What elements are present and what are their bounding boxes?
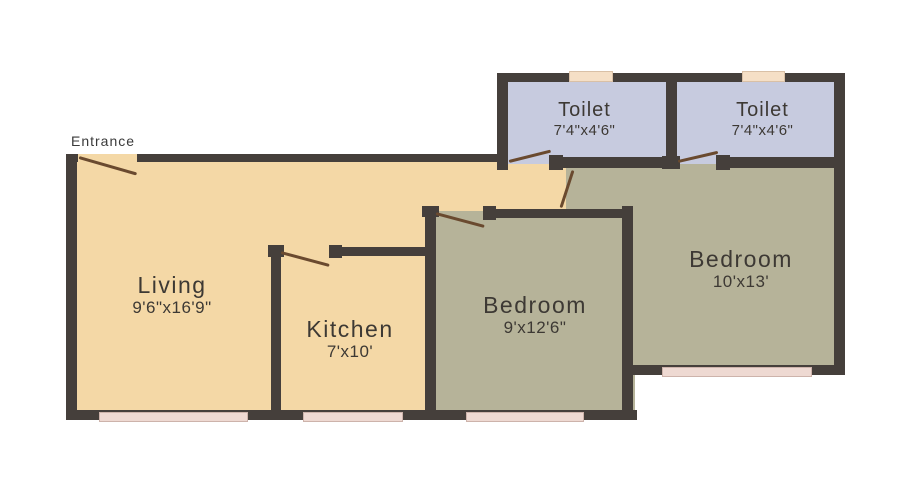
living-name: Living — [92, 272, 252, 298]
living-label: Living 9'6"x16'9" — [92, 272, 252, 318]
bedroom1-label: Bedroom 9'x12'6" — [455, 292, 615, 338]
bedroom2-label: Bedroom 10'x13' — [661, 246, 821, 292]
toilet2-window — [742, 71, 785, 82]
kitchen-dims: 7'x10' — [270, 342, 430, 362]
wall-kitchen-top — [329, 247, 433, 256]
kitchen-label: Kitchen 7'x10' — [270, 316, 430, 362]
wall-toilet1-bottom — [549, 157, 667, 168]
wall-bedroom1-right — [622, 206, 633, 420]
bedroom1-dims: 9'x12'6" — [455, 318, 615, 338]
floor-plan: Entrance Living 9'6"x16'9" Kitchen 7'x10… — [0, 0, 900, 500]
toilet1-name: Toilet — [517, 99, 652, 122]
bedroom1-name: Bedroom — [455, 292, 615, 318]
living-dims: 9'6"x16'9" — [92, 298, 252, 318]
wall-toilets-mid — [666, 73, 677, 164]
toilet2-name: Toilet — [695, 99, 830, 122]
entrance-label: Entrance — [71, 133, 135, 149]
bedroom2-dims: 10'x13' — [661, 272, 821, 292]
wall-bedroom1-top — [483, 209, 633, 218]
toilet1-label: Toilet 7'4"x4'6" — [517, 99, 652, 139]
toilet2-dims: 7'4"x4'6" — [695, 122, 830, 139]
kitchen-window — [303, 412, 403, 422]
bedroom2-window — [662, 367, 812, 377]
bedroom2-name: Bedroom — [661, 246, 821, 272]
toilet1-dims: 7'4"x4'6" — [517, 122, 652, 139]
living-window — [99, 412, 248, 422]
wall-outer-right — [834, 73, 845, 375]
toilet2-label: Toilet 7'4"x4'6" — [695, 99, 830, 139]
wall-bedroom1-left — [425, 206, 436, 420]
wall-toilet2-bottom — [716, 157, 835, 168]
toilet1-window — [569, 71, 613, 82]
kitchen-name: Kitchen — [270, 316, 430, 342]
wall-outer-left — [66, 154, 77, 420]
wall-hall-top — [137, 154, 505, 162]
wall-toilet1-left — [497, 73, 508, 170]
bedroom1-window — [466, 412, 584, 422]
